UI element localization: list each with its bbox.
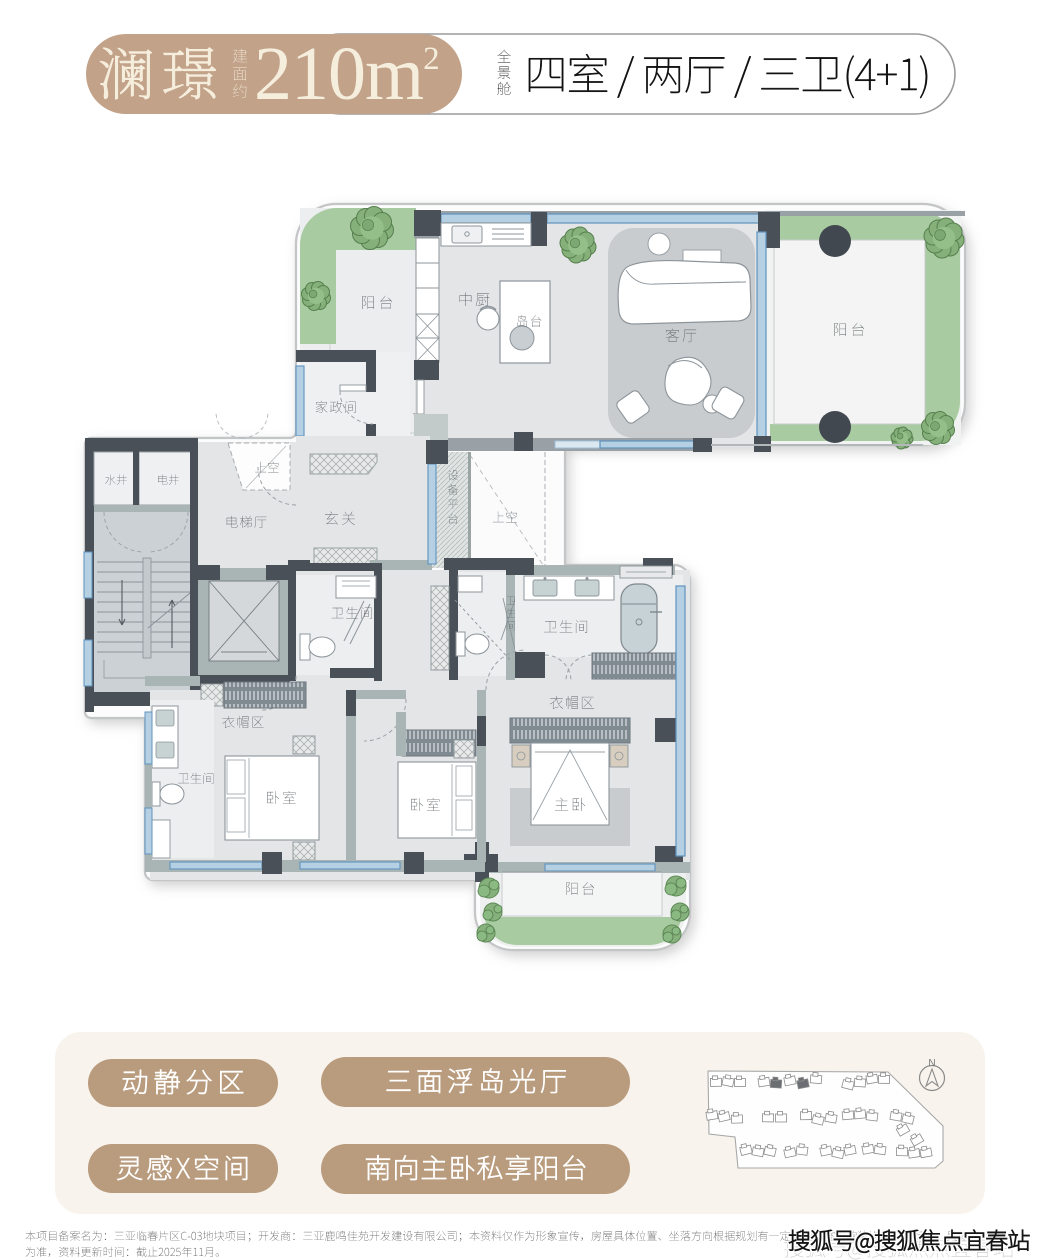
svg-text:210m2: 210m2 <box>254 32 439 116</box>
svg-text:N: N <box>928 1058 935 1069</box>
